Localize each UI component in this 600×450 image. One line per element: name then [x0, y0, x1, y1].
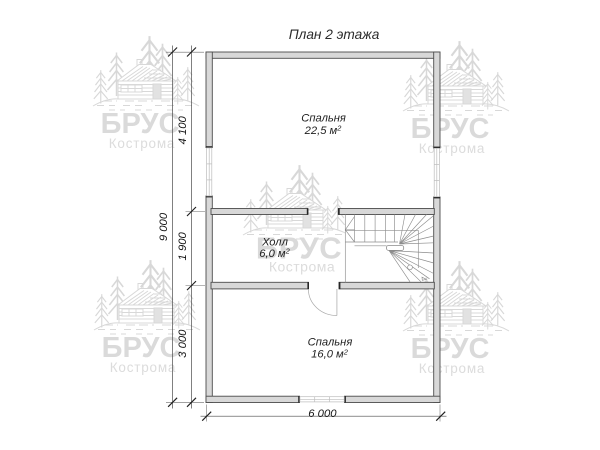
svg-text:1 900: 1 900	[177, 231, 189, 260]
svg-text:6 000: 6 000	[308, 408, 337, 420]
svg-text:Кострома: Кострома	[269, 259, 335, 275]
svg-text:Холл: Холл	[261, 236, 289, 248]
svg-text:4 100: 4 100	[177, 115, 189, 144]
svg-text:План 2 этажа: План 2 этажа	[289, 27, 380, 42]
svg-text:9 000: 9 000	[158, 212, 170, 241]
svg-text:3 000: 3 000	[177, 329, 189, 358]
svg-text:22,5 м2: 22,5 м2	[304, 124, 342, 137]
svg-text:16,0 м2: 16,0 м2	[311, 347, 348, 360]
svg-text:6,0 м2: 6,0 м2	[259, 247, 289, 260]
